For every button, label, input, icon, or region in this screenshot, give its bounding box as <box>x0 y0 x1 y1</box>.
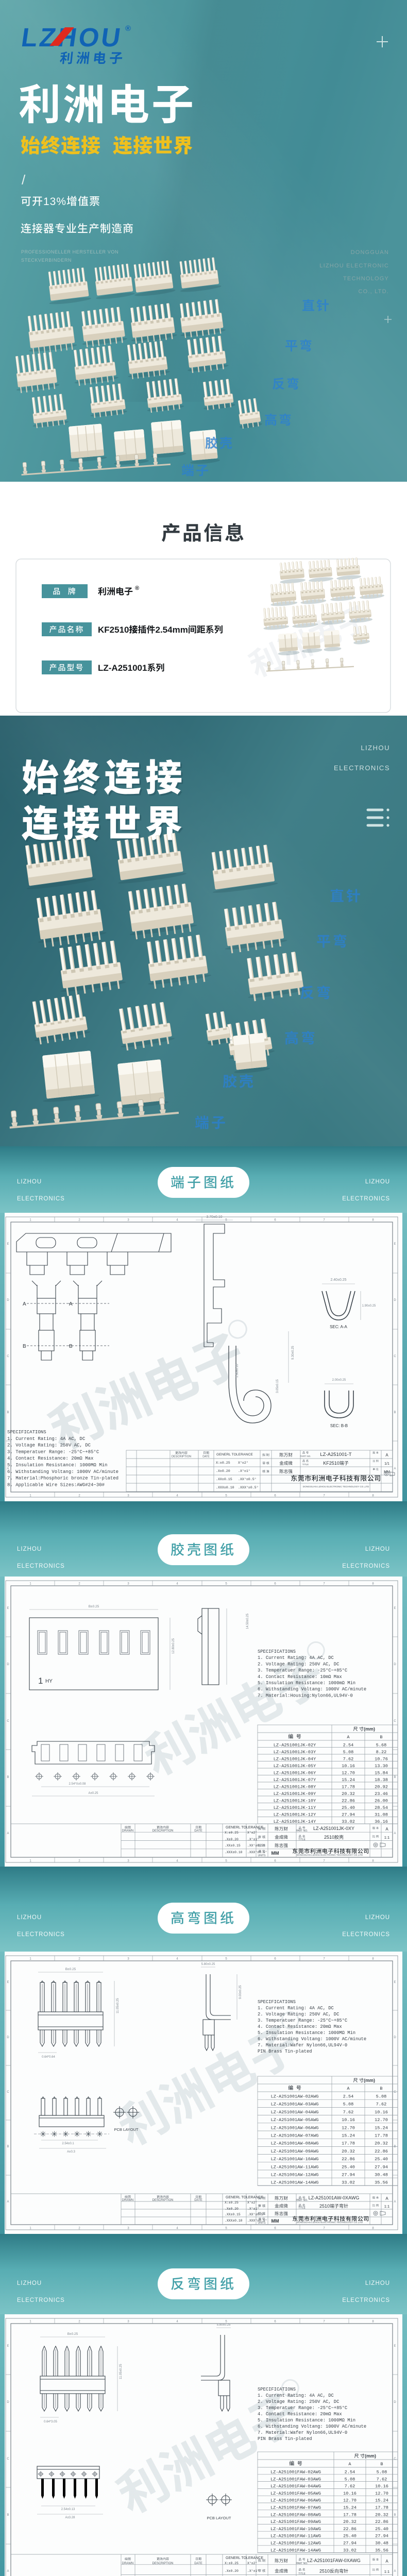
svg-text:36.16: 36.16 <box>375 1819 388 1824</box>
svg-text:D: D <box>394 1663 396 1666</box>
svg-text:15.84: 15.84 <box>375 1771 388 1776</box>
svg-text:A: A <box>348 2462 351 2467</box>
svg-text:ELECTRONICS: ELECTRONICS <box>17 2297 65 2303</box>
svg-text:PCB LAYOUT: PCB LAYOUT <box>114 2127 139 2132</box>
svg-text:A±3.28: A±3.28 <box>65 2516 76 2519</box>
svg-text:7.62: 7.62 <box>343 1757 354 1762</box>
svg-text:25.40: 25.40 <box>342 2164 355 2170</box>
svg-text:1:1: 1:1 <box>384 1835 389 1840</box>
svg-text:0.64*3.05: 0.64*3.05 <box>44 2420 57 2424</box>
svg-text:LZ-A251001AW-12AWG: LZ-A251001AW-12AWG <box>271 2173 319 2178</box>
svg-text:7. Material:Phosphoric bronze: 7. Material:Phosphoric bronze Tin-plated <box>7 1476 118 1481</box>
svg-text:LZ-A251001FAW-02AWG: LZ-A251001FAW-02AWG <box>270 2470 321 2475</box>
svg-text:25.40: 25.40 <box>343 2534 357 2539</box>
svg-text:.XX±0.15: .XX±0.15 <box>216 1478 232 1481</box>
svg-text:X°±2°: X°±2° <box>238 1461 248 1465</box>
svg-text:5. Insulation Resistance: 1000: 5. Insulation Resistance: 1000mΩ Min <box>258 1681 355 1686</box>
svg-text:DESCRIPTION: DESCRIPTION <box>152 2562 173 2565</box>
svg-text:LZ-A251001JK-02Y: LZ-A251001JK-02Y <box>274 1743 316 1748</box>
svg-text:25.40: 25.40 <box>375 2527 388 2532</box>
svg-text:D: D <box>7 2401 9 2404</box>
svg-text:DONGGUAN LIZHOU ELECTRONIC TEC: DONGGUAN LIZHOU ELECTRONIC TECHNOLOGY CO… <box>297 2221 363 2224</box>
svg-text:PIN Brass Tin-plated: PIN Brass Tin-plated <box>258 2436 312 2442</box>
svg-text:LZ-A251001AW-10AWG: LZ-A251001AW-10AWG <box>271 2157 319 2162</box>
svg-text:6. Withstanding Voltang: 1000V: 6. Withstanding Voltang: 1000V AC/minute <box>258 1687 366 1692</box>
svg-text:A: A <box>7 2570 9 2573</box>
svg-text:DATE: DATE <box>194 2199 202 2202</box>
svg-text:TECHNOLOGY: TECHNOLOGY <box>343 276 389 282</box>
svg-text:C: C <box>394 1720 396 1723</box>
svg-text:.X±0.20: .X±0.20 <box>216 1469 230 1473</box>
svg-text:C: C <box>394 1355 396 1358</box>
svg-text:2510: 2510 <box>319 2569 330 2574</box>
svg-text:3.05±0.15: 3.05±0.15 <box>276 1379 279 1393</box>
svg-text:5. Insulation Resistance: 1000: 5. Insulation Resistance: 1000MΩ Min <box>258 2418 355 2423</box>
svg-text:LZ-A251001AW-09AWG: LZ-A251001AW-09AWG <box>271 2149 319 2154</box>
svg-text:20.92: 20.92 <box>375 1785 388 1790</box>
svg-text:LZ-A251001AW-11AWG: LZ-A251001AW-11AWG <box>271 2164 319 2170</box>
svg-text:X:±0.25: X:±0.25 <box>225 1831 239 1835</box>
svg-text:23.46: 23.46 <box>375 1791 388 1797</box>
svg-text:X°±2°: X°±2° <box>247 2200 257 2205</box>
svg-text:17.78: 17.78 <box>342 2141 355 2146</box>
svg-text:.XXX°±0.5°: .XXX°±0.5° <box>247 1850 267 1854</box>
svg-text:A: A <box>394 1832 396 1835</box>
svg-text:1.90±0.25: 1.90±0.25 <box>362 1304 376 1308</box>
svg-text:E: E <box>7 1981 9 1984</box>
svg-text:12.70: 12.70 <box>375 2491 388 2496</box>
svg-text:.X±0.20: .X±0.20 <box>225 2207 239 2211</box>
svg-text:1:1: 1:1 <box>384 2569 389 2574</box>
svg-text:0.64*0.64: 0.64*0.64 <box>42 2056 55 2059</box>
svg-text:17.78: 17.78 <box>343 2512 357 2517</box>
svg-text:20.32: 20.32 <box>342 2149 355 2154</box>
svg-text:B: B <box>7 2514 9 2517</box>
svg-text:27.94: 27.94 <box>375 2534 388 2539</box>
svg-text:LZ-A251001JK-07Y: LZ-A251001JK-07Y <box>274 1777 316 1783</box>
svg-text:B±0.25: B±0.25 <box>67 2332 78 2336</box>
svg-text:1. Current Rating: 4A AC, DC: 1. Current Rating: 4A AC, DC <box>7 1436 86 1442</box>
svg-text:5.08: 5.08 <box>343 2102 354 2107</box>
svg-text:10.16: 10.16 <box>342 1764 355 1769</box>
svg-text:D: D <box>7 1299 9 1302</box>
svg-text:15.24: 15.24 <box>342 2133 355 2139</box>
svg-text:27.94: 27.94 <box>343 2541 357 2546</box>
svg-text:LZ-A251001FAW-05AWG: LZ-A251001FAW-05AWG <box>270 2491 321 2496</box>
svg-text:GENERL TOLERANCE: GENERL TOLERANCE <box>226 1826 263 1829</box>
svg-text:7.62: 7.62 <box>343 2110 354 2115</box>
svg-text:2510: 2510 <box>319 2204 330 2209</box>
svg-text:28.54: 28.54 <box>375 1805 388 1810</box>
svg-text:C: C <box>7 2091 9 2094</box>
svg-text:22.86: 22.86 <box>343 2527 357 2532</box>
svg-text:E: E <box>394 1981 396 1984</box>
svg-text:D: D <box>394 1299 396 1302</box>
svg-text:14.50±0.25: 14.50±0.25 <box>246 1613 249 1629</box>
svg-text:33.02: 33.02 <box>343 2548 357 2553</box>
svg-text:12.70: 12.70 <box>342 2125 355 2130</box>
svg-text:LZ-A251001JK-09Y: LZ-A251001JK-09Y <box>274 1791 316 1797</box>
svg-text:7. Material:Wafer Nylon66,UL94: 7. Material:Wafer Nylon66,UL94V-0 <box>258 2043 347 2048</box>
svg-text:B: B <box>7 1411 9 1414</box>
svg-text:3. Temperatuer Range: -25°C~+8: 3. Temperatuer Range: -25°C~+85°C <box>7 1449 99 1454</box>
svg-text:PART NO.: PART NO. <box>296 2199 308 2202</box>
svg-text:LIZHOU: LIZHOU <box>17 1914 42 1921</box>
svg-text:10.76: 10.76 <box>375 1757 388 1762</box>
svg-text:X:±0.25: X:±0.25 <box>225 2562 239 2565</box>
svg-text:7. Material:Wafer Nylon66,UL94: 7. Material:Wafer Nylon66,UL94V-0 <box>258 2430 347 2435</box>
svg-text:LZ-A251001AW-14AWG: LZ-A251001AW-14AWG <box>271 2180 319 2185</box>
svg-text:LIZHOU: LIZHOU <box>361 744 390 752</box>
svg-text:.X±0.20: .X±0.20 <box>225 2569 239 2573</box>
svg-text:LIZHOU: LIZHOU <box>17 1546 42 1552</box>
svg-text:20.32: 20.32 <box>375 2141 388 2146</box>
svg-text:10.16: 10.16 <box>343 2491 357 2496</box>
svg-text:PART NO.: PART NO. <box>300 1455 311 1458</box>
svg-text:12.80±0.25: 12.80±0.25 <box>172 1638 175 1654</box>
svg-text:UNITS: UNITS <box>258 2222 266 2225</box>
svg-text:A: A <box>385 1453 388 1458</box>
svg-text:5.80±0.25: 5.80±0.25 <box>217 2324 231 2327</box>
svg-text:1. Current Rating: 4A AC, DC: 1. Current Rating: 4A AC, DC <box>258 2006 334 2011</box>
svg-text:2. Voltage Rating: 250V AC, DC: 2. Voltage Rating: 250V AC, DC <box>258 1662 339 1667</box>
svg-text:B: B <box>7 2145 9 2148</box>
svg-text:12.70: 12.70 <box>343 2498 357 2503</box>
svg-text:A: A <box>394 2200 396 2204</box>
svg-text:SEC: B-B: SEC: B-B <box>330 1423 348 1428</box>
svg-text:.XXX°±0.5°: .XXX°±0.5° <box>238 1485 259 1489</box>
svg-text:E: E <box>394 1607 396 1610</box>
svg-text:7.62: 7.62 <box>377 2477 387 2482</box>
svg-text:B: B <box>394 1776 396 1779</box>
svg-text:.XX±0.15: .XX±0.15 <box>225 2213 241 2216</box>
svg-text:D: D <box>394 2036 396 2039</box>
svg-text:22.86: 22.86 <box>375 2519 388 2524</box>
svg-text:LZ-A251001FAW-07AWG: LZ-A251001FAW-07AWG <box>270 2505 321 2511</box>
svg-text:2.54±0.13: 2.54±0.13 <box>61 2508 75 2511</box>
svg-text:22.86: 22.86 <box>342 2157 355 2162</box>
svg-text:TITLE: TITLE <box>298 1838 306 1841</box>
svg-text:LZ-A251001JK-10Y: LZ-A251001JK-10Y <box>274 1799 316 1804</box>
svg-text:KF2510: KF2510 <box>98 625 129 635</box>
svg-text:20.32: 20.32 <box>342 1791 355 1797</box>
svg-text:DESCRIPTION: DESCRIPTION <box>152 2199 173 2202</box>
svg-text:LIZHOU: LIZHOU <box>365 1914 390 1921</box>
svg-text:.XXX±0.10: .XXX±0.10 <box>225 1851 243 1854</box>
svg-text:SPECIFICATIONS: SPECIFICATIONS <box>258 1999 296 2005</box>
svg-text:LZ-A251001JK-03Y: LZ-A251001JK-03Y <box>274 1750 316 1755</box>
svg-text:A: A <box>347 2086 350 2091</box>
svg-text:2.54: 2.54 <box>343 1743 354 1748</box>
svg-text:LZ-A251001JK-06Y: LZ-A251001JK-06Y <box>274 1771 316 1776</box>
svg-text:8.22: 8.22 <box>376 1750 387 1755</box>
svg-text:KF2510: KF2510 <box>323 1461 340 1466</box>
svg-text:X:±0.25: X:±0.25 <box>225 2201 239 2205</box>
svg-text:30.48: 30.48 <box>375 2541 388 2546</box>
svg-text:2. Voltage Rating: 250V AC, DC: 2. Voltage Rating: 250V AC, DC <box>7 1443 91 1448</box>
svg-text:B: B <box>69 1344 73 1349</box>
svg-text:UNITS: UNITS <box>258 1854 266 1857</box>
svg-text:5. Insulation Resistance: 1000: 5. Insulation Resistance: 1000MΩ Min <box>258 2030 355 2036</box>
svg-text:2.54*X±0.08: 2.54*X±0.08 <box>69 1783 87 1786</box>
svg-text:1:1: 1:1 <box>384 2204 389 2209</box>
svg-text:B: B <box>7 1776 9 1779</box>
svg-text:LZ-A251001JK-11Y: LZ-A251001JK-11Y <box>274 1805 316 1810</box>
svg-text:®: ® <box>125 24 131 33</box>
svg-text:A±0.25: A±0.25 <box>89 1792 99 1795</box>
svg-text:.X°±1°: .X°±1° <box>247 2569 259 2573</box>
svg-text:1. Current Rating: 4A AC, DC: 1. Current Rating: 4A AC, DC <box>258 1655 334 1660</box>
svg-text:LZ-A251001AW-08AWG: LZ-A251001AW-08AWG <box>271 2141 319 2146</box>
svg-text:8. Applicable Wire Sizes:AWG#2: 8. Applicable Wire Sizes:AWG#24~30# <box>7 1482 105 1487</box>
svg-text:4. Contact Resistance: 10mΩ Ma: 4. Contact Resistance: 10mΩ Max <box>258 1674 342 1680</box>
svg-text:22.86: 22.86 <box>342 1799 355 1804</box>
svg-text:B±0.25: B±0.25 <box>89 1605 99 1608</box>
svg-text:STECKVERBINDERN: STECKVERBINDERN <box>21 258 72 263</box>
svg-text:A: A <box>347 1735 350 1740</box>
svg-text:D: D <box>394 2401 396 2404</box>
svg-text:C: C <box>394 2091 396 2094</box>
svg-text:.X°±1°: .X°±1° <box>238 1469 250 1473</box>
svg-text:E: E <box>7 1607 9 1610</box>
svg-text:4. Contact Resistance: 20mΩ Ma: 4. Contact Resistance: 20mΩ Max <box>258 2024 342 2029</box>
svg-text:5.68: 5.68 <box>376 1743 387 1748</box>
svg-text:LZ-A251001AW-03AWG: LZ-A251001AW-03AWG <box>271 2102 319 2107</box>
svg-text:2.54mm: 2.54mm <box>156 625 188 635</box>
svg-text:B±0.25: B±0.25 <box>65 1968 76 1971</box>
svg-text:6. Withstanding Voltang: 1000V: 6. Withstanding Voltang: 1000V AC/minute <box>258 2424 366 2429</box>
svg-text:DONGGUAN LIZHOU ELECTRONIC TEC: DONGGUAN LIZHOU ELECTRONIC TECHNOLOGY CO… <box>297 1854 363 1856</box>
svg-text:31.08: 31.08 <box>375 1812 388 1818</box>
svg-text:®: ® <box>135 585 139 591</box>
svg-text:(mm): (mm) <box>365 2453 376 2459</box>
svg-text:30.48: 30.48 <box>375 2173 388 2178</box>
svg-text:4. Contact Resistance: 20mΩ Ma: 4. Contact Resistance: 20mΩ Max <box>258 2412 342 2417</box>
svg-text:LZ-A251001FAW-04AWG: LZ-A251001FAW-04AWG <box>270 2484 321 2489</box>
svg-text:6. Withstanding Voltang: 1000V: 6. Withstanding Voltang: 1000V AC/minute <box>258 2037 366 2042</box>
svg-text:TITLE: TITLE <box>302 1463 309 1466</box>
svg-text:DATE: DATE <box>202 1455 210 1459</box>
svg-text:26.00: 26.00 <box>375 1799 388 1804</box>
svg-text:11.05±0.25: 11.05±0.25 <box>116 1998 120 2013</box>
svg-text:DATE: DATE <box>194 1829 202 1833</box>
svg-text:LIZHOU: LIZHOU <box>17 1179 42 1185</box>
svg-text:LZ-A251001JK-0XY: LZ-A251001JK-0XY <box>313 1826 354 1831</box>
svg-text:17.78: 17.78 <box>375 2133 388 2139</box>
svg-text:.XX°±0.5°: .XX°±0.5° <box>238 1477 257 1481</box>
svg-text:X:±0.25: X:±0.25 <box>216 1461 230 1465</box>
svg-text:A: A <box>385 2196 388 2201</box>
svg-text:2.54±0.1: 2.54±0.1 <box>62 2142 74 2145</box>
svg-text:C: C <box>7 2458 9 2461</box>
svg-text:LZ-A251001AW-07AWG: LZ-A251001AW-07AWG <box>271 2133 319 2139</box>
svg-text:LIZHOU ELECTRONIC: LIZHOU ELECTRONIC <box>319 263 389 269</box>
svg-text:C: C <box>394 2458 396 2461</box>
svg-text:(mm): (mm) <box>364 2078 375 2083</box>
svg-text:.XX±0.15: .XX±0.15 <box>225 1844 241 1848</box>
svg-text:27.94: 27.94 <box>342 1812 355 1818</box>
svg-text:.XX°±0.5°: .XX°±0.5° <box>247 1843 265 1848</box>
svg-text:12.70: 12.70 <box>342 1771 355 1776</box>
svg-text:10.16: 10.16 <box>342 2117 355 2123</box>
svg-text:33.02: 33.02 <box>342 2180 355 2185</box>
svg-text:GENERL TOLERANCE: GENERL TOLERANCE <box>226 2556 263 2560</box>
svg-text:LZ-A251001JK-12Y: LZ-A251001JK-12Y <box>274 1812 316 1818</box>
svg-text:X°±2°: X°±2° <box>247 2561 257 2565</box>
svg-text:TITLE: TITLE <box>298 2572 306 2575</box>
svg-text:7. Material:Housing:Nylon66,UL: 7. Material:Housing:Nylon66,UL94V-0 <box>258 1693 353 1698</box>
svg-text:LZ-A251001JK-14Y: LZ-A251001JK-14Y <box>274 1819 316 1824</box>
svg-text:12.70: 12.70 <box>375 2117 388 2123</box>
svg-text:E: E <box>394 2345 396 2348</box>
svg-text:ELECTRONICS: ELECTRONICS <box>334 764 390 772</box>
svg-text:2.40±0.25: 2.40±0.25 <box>330 1278 346 1282</box>
svg-text:LZHOU: LZHOU <box>20 23 125 52</box>
svg-text:2.54: 2.54 <box>343 2094 354 2099</box>
svg-text:.X±0.20: .X±0.20 <box>225 1838 239 1841</box>
svg-text:2.54: 2.54 <box>345 2470 355 2475</box>
svg-text:ELECTRONICS: ELECTRONICS <box>342 1563 390 1569</box>
svg-text:MM: MM <box>272 1851 279 1856</box>
svg-text:35.56: 35.56 <box>375 2180 388 2185</box>
svg-text:3. Temperatuer Range: -25°C~+8: 3. Temperatuer Range: -25°C~+85°C <box>258 2018 347 2023</box>
svg-text:1.50±0.10: 1.50±0.10 <box>236 1364 239 1378</box>
svg-text:B: B <box>394 1411 396 1414</box>
svg-text:27.94: 27.94 <box>342 2173 355 2178</box>
svg-text:LIZHOU: LIZHOU <box>365 1546 390 1552</box>
svg-text:15.24: 15.24 <box>375 2125 388 2130</box>
svg-text:15.24: 15.24 <box>375 2498 388 2503</box>
svg-text:LIZHOU: LIZHOU <box>365 2280 390 2286</box>
svg-text:ELECTRONICS: ELECTRONICS <box>342 1196 390 1202</box>
svg-text:A: A <box>394 2570 396 2573</box>
svg-text:15.24: 15.24 <box>342 1777 355 1783</box>
svg-text:ELECTRONICS: ELECTRONICS <box>342 1931 390 1938</box>
svg-text:27.94: 27.94 <box>375 2164 388 2170</box>
svg-text:LZ-A251001AW-0XAWG: LZ-A251001AW-0XAWG <box>309 2195 360 2200</box>
svg-text:LZ-A251001FAW-10AWG: LZ-A251001FAW-10AWG <box>270 2527 321 2532</box>
svg-text:SEC: A-A: SEC: A-A <box>330 1325 347 1329</box>
svg-text:LIZHOU: LIZHOU <box>17 2280 42 2286</box>
svg-text:LZ-A251001JK-08Y: LZ-A251001JK-08Y <box>274 1785 316 1790</box>
svg-text:.XX°±0.5°: .XX°±0.5° <box>247 2212 265 2216</box>
svg-text:13%: 13% <box>43 196 66 208</box>
svg-text:5.08: 5.08 <box>345 2477 355 2482</box>
svg-text:LZ-A251001JK-04Y: LZ-A251001JK-04Y <box>274 1757 316 1762</box>
svg-text:.XXX±0.10: .XXX±0.10 <box>225 2219 243 2223</box>
svg-text:LZ-A251001: LZ-A251001 <box>98 663 147 673</box>
svg-text:5. Insulation Resistance: 1000: 5. Insulation Resistance: 1000MΩ Min <box>7 1463 107 1468</box>
svg-text:3. Temperatuer Range: -25°C~+8: 3. Temperatuer Range: -25°C~+85°C <box>258 2405 347 2411</box>
svg-text:25.40: 25.40 <box>375 2157 388 2162</box>
svg-text:3.70±0.10: 3.70±0.10 <box>206 1215 222 1219</box>
svg-text:15.24: 15.24 <box>343 2505 357 2511</box>
svg-text:B: B <box>380 2462 383 2467</box>
svg-text:DESCRIPTION: DESCRIPTION <box>172 1455 191 1459</box>
svg-text:18.38: 18.38 <box>375 1777 388 1783</box>
svg-text:.XXX±0.10: .XXX±0.10 <box>216 1486 234 1489</box>
svg-text:1: 1 <box>38 1676 43 1686</box>
svg-text:2.00±0.25: 2.00±0.25 <box>332 1379 346 1382</box>
svg-text:A: A <box>394 1467 396 1470</box>
svg-text:2. Voltage Rating: 250V AC, DC: 2. Voltage Rating: 250V AC, DC <box>258 2012 339 2017</box>
svg-text:LZ-A251001AW-02AWG: LZ-A251001AW-02AWG <box>271 2094 319 2099</box>
svg-text:X°±2°: X°±2° <box>247 1831 257 1835</box>
svg-text:C: C <box>7 1720 9 1723</box>
svg-text:SPECIFICATIONS: SPECIFICATIONS <box>7 1430 46 1435</box>
svg-text:10.16: 10.16 <box>375 2484 388 2489</box>
svg-text:25.40: 25.40 <box>342 1805 355 1810</box>
svg-text:11.05±0.25: 11.05±0.25 <box>120 2364 123 2379</box>
svg-text:DONGGUAN LIZHOU ELECTRONIC TEC: DONGGUAN LIZHOU ELECTRONIC TECHNOLOGY CO… <box>303 1485 369 1488</box>
svg-text:LZ-A251001JK-05Y: LZ-A251001JK-05Y <box>274 1764 316 1769</box>
svg-text:TITLE: TITLE <box>298 2207 306 2210</box>
svg-text:LZ-A251001FAW-14AWG: LZ-A251001FAW-14AWG <box>270 2548 321 2553</box>
svg-text:PCB LAYOUT: PCB LAYOUT <box>207 2516 231 2520</box>
svg-text:LZ-A251001FAW-08AWG: LZ-A251001FAW-08AWG <box>270 2512 321 2517</box>
svg-text:LZ-A251001AW-05AWG: LZ-A251001AW-05AWG <box>271 2117 319 2123</box>
svg-text:ELECTRONICS: ELECTRONICS <box>342 2297 390 2303</box>
svg-text:D: D <box>7 1663 9 1666</box>
svg-text:35.56: 35.56 <box>375 2548 388 2553</box>
svg-text:/: / <box>22 172 26 188</box>
svg-text:A: A <box>7 2200 9 2204</box>
svg-text:E: E <box>7 2345 9 2348</box>
svg-text:.X°±1°: .X°±1° <box>247 2207 259 2211</box>
svg-text:LZ-A251001FAW-12AWG: LZ-A251001FAW-12AWG <box>270 2541 321 2546</box>
svg-text:.X°±1°: .X°±1° <box>247 1837 259 1841</box>
svg-text:LZ-A251001-T: LZ-A251001-T <box>320 1452 351 1458</box>
svg-text:C: C <box>7 1355 9 1358</box>
svg-text:MM: MM <box>272 2218 279 2224</box>
svg-text:A: A <box>23 1301 26 1307</box>
svg-text:5.80±0.25: 5.80±0.25 <box>201 1963 215 1966</box>
svg-text:5.08: 5.08 <box>376 2094 387 2099</box>
svg-text:LIZHOU: LIZHOU <box>365 1179 390 1185</box>
svg-text:SPECIFICATIONS: SPECIFICATIONS <box>258 1649 296 1654</box>
svg-text:D: D <box>7 2036 9 2039</box>
svg-text:A±0.3: A±0.3 <box>67 2150 75 2154</box>
svg-text:GENERL TOLERANCE: GENERL TOLERANCE <box>216 1453 253 1456</box>
svg-text:1/1: 1/1 <box>384 1462 389 1466</box>
svg-text:A: A <box>69 1301 73 1307</box>
svg-text:DRAWN: DRAWN <box>122 1829 133 1833</box>
svg-text:LZ-A251001AW-06AWG: LZ-A251001AW-06AWG <box>271 2125 319 2130</box>
svg-text:13.30: 13.30 <box>375 1764 388 1769</box>
svg-text:17.78: 17.78 <box>342 1785 355 1790</box>
svg-text:DESCRIPTION: DESCRIPTION <box>152 1829 173 1833</box>
svg-text:6. Withstanding Voltang: 1000V: 6. Withstanding Voltang: 1000V AC/minute <box>7 1469 118 1475</box>
svg-text:B: B <box>380 1735 382 1740</box>
svg-text:DRAWN: DRAWN <box>122 2199 133 2202</box>
svg-text:DATE: DATE <box>194 2562 202 2565</box>
svg-text:CO., LTD.: CO., LTD. <box>359 289 389 295</box>
svg-text:2510: 2510 <box>324 1835 334 1840</box>
svg-text:17.78: 17.78 <box>375 2505 388 2511</box>
svg-text:PART NO.: PART NO. <box>296 1829 308 1833</box>
svg-text:B: B <box>394 2145 396 2148</box>
svg-text:E: E <box>394 1243 396 1246</box>
svg-text:SPECIFICATIONS: SPECIFICATIONS <box>258 2387 296 2392</box>
svg-text:4. Contact Resistance: 20mΩ Ma: 4. Contact Resistance: 20mΩ Max <box>7 1456 93 1461</box>
svg-text:2. Voltage Rating: 250V AC, DC: 2. Voltage Rating: 250V AC, DC <box>258 2399 339 2404</box>
svg-text:A: A <box>385 1827 388 1832</box>
svg-text:GENERL TOLERANCE: GENERL TOLERANCE <box>226 2196 263 2199</box>
svg-text:DONGGUAN: DONGGUAN <box>351 249 389 256</box>
svg-text:PROFESSIONELLER HERSTELLER VON: PROFESSIONELLER HERSTELLER VON <box>21 249 118 255</box>
svg-text:9.00±0.25: 9.00±0.25 <box>239 1985 242 1999</box>
svg-text:A: A <box>7 1832 9 1835</box>
